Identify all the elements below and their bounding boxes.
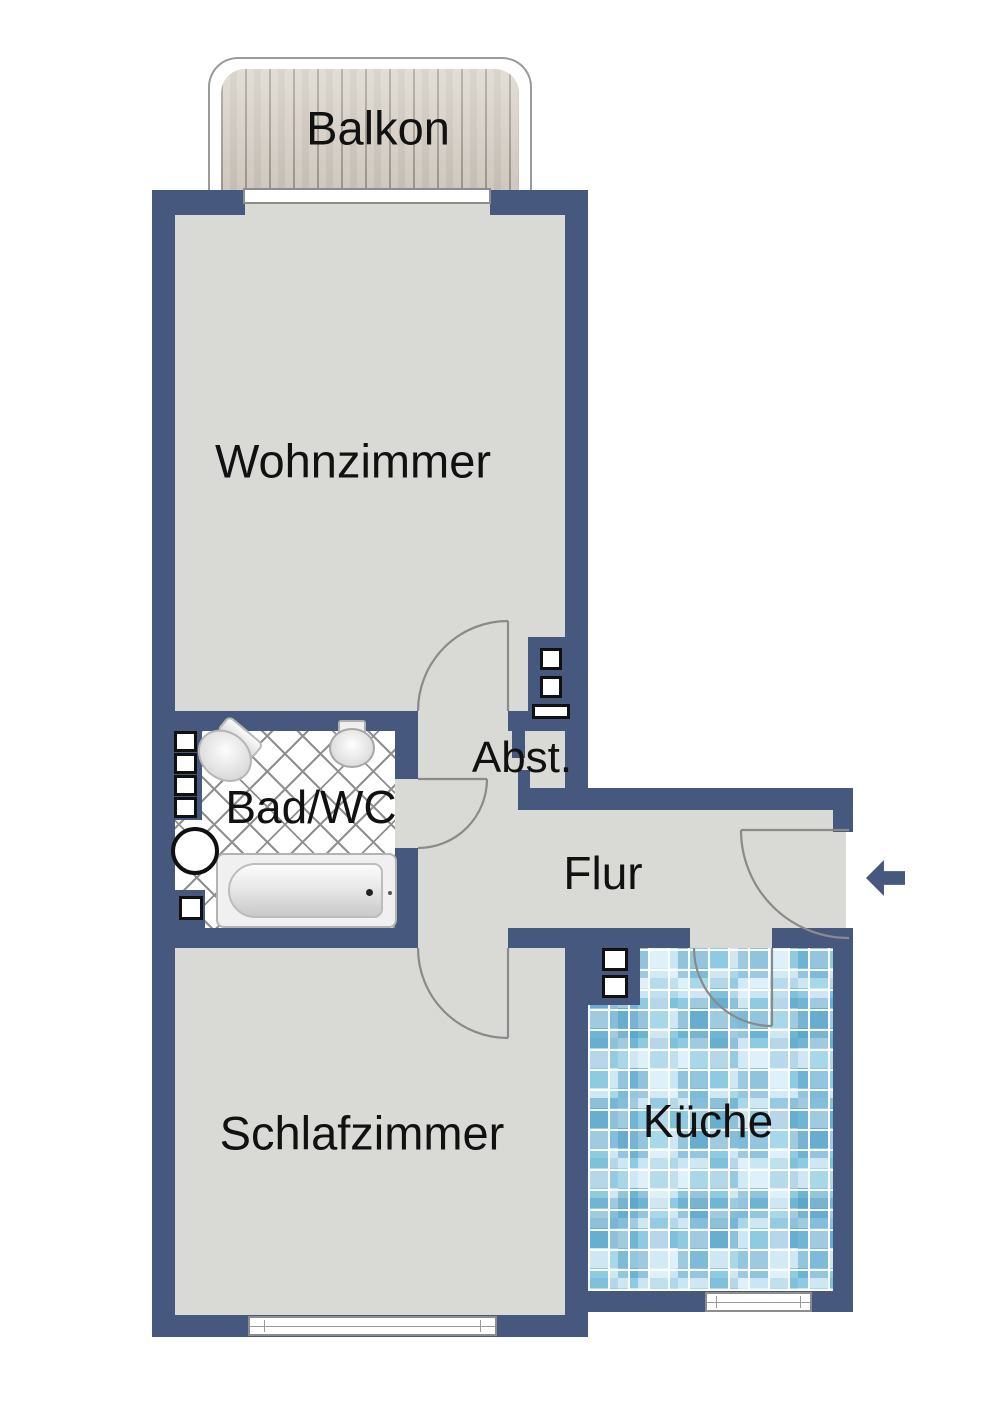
wall-outer-right-lower bbox=[833, 938, 853, 1312]
entrance-arrow-icon bbox=[866, 860, 905, 896]
room-label-wohnzimmer: Wohnzimmer bbox=[215, 434, 491, 489]
window-tick bbox=[800, 1296, 801, 1308]
bathtub bbox=[216, 853, 397, 928]
wall-bad-schlaf-divider bbox=[152, 928, 418, 948]
shaft-bad-3 bbox=[174, 775, 197, 796]
window-mullion bbox=[707, 1302, 810, 1303]
shaft-bad-4 bbox=[174, 797, 197, 818]
washing-machine bbox=[171, 827, 219, 875]
window-tick bbox=[264, 1320, 265, 1332]
bad-door-opening bbox=[395, 779, 418, 848]
wall-flur-top bbox=[518, 788, 853, 810]
window-mullion bbox=[250, 1326, 495, 1327]
balcony-door-sill bbox=[243, 188, 491, 204]
room-label-kueche: Küche bbox=[643, 1094, 773, 1148]
wall-bad-right-lower bbox=[395, 848, 418, 928]
shaft-bad-single bbox=[179, 896, 203, 920]
room-label-bad-wc: Bad/WC bbox=[225, 780, 396, 834]
sink bbox=[329, 728, 375, 768]
window-schlafzimmer bbox=[248, 1316, 497, 1336]
room-label-flur: Flur bbox=[563, 846, 642, 900]
floor-plan: Balkon Wohnzimmer Bad/WC Abst. Flur Schl… bbox=[0, 0, 1000, 1415]
room-label-balkon: Balkon bbox=[306, 101, 450, 156]
shaft-wohnzimmer-1 bbox=[540, 648, 562, 670]
window-tick bbox=[480, 1320, 481, 1332]
shaft-kueche-1 bbox=[602, 948, 628, 971]
bathtub-drain bbox=[366, 889, 373, 896]
room-label-schlafzimmer: Schlafzimmer bbox=[220, 1106, 505, 1161]
shaft-kueche-2 bbox=[602, 975, 628, 998]
wall-outer-right-mid bbox=[833, 810, 853, 832]
balcony-door-floor-strip bbox=[245, 203, 490, 215]
shaft-wohnzimmer-2 bbox=[540, 676, 562, 698]
bathtub-overflow bbox=[388, 891, 392, 895]
bathtub-basin bbox=[228, 863, 383, 918]
window-kueche bbox=[705, 1292, 812, 1312]
wall-schlaf-kueche-divider bbox=[565, 948, 588, 1337]
wall-bad-right-upper bbox=[395, 731, 418, 779]
window-tick bbox=[716, 1296, 717, 1308]
shaft-wohnzimmer-wide bbox=[532, 704, 570, 719]
room-label-abstellraum: Abst. bbox=[472, 733, 572, 783]
